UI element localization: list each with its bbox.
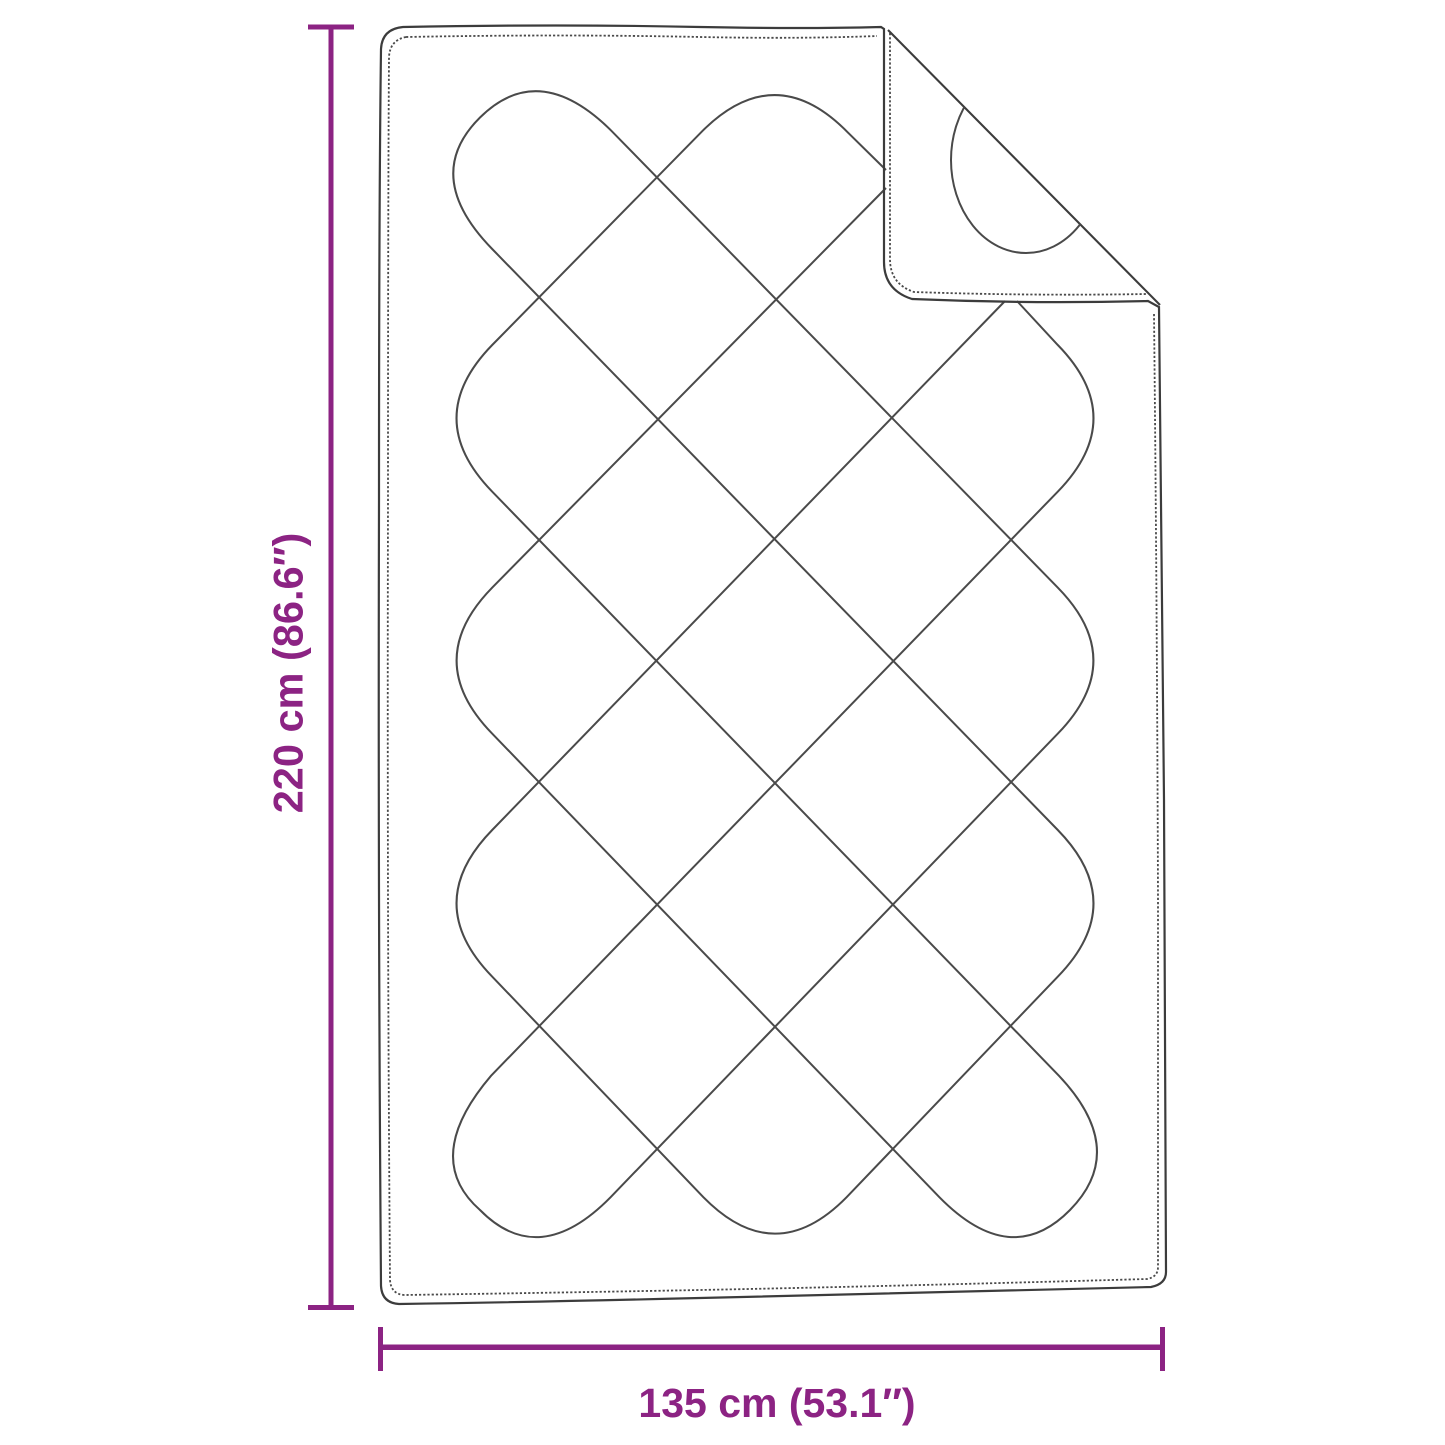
svg-text:135 cm (53.1″): 135 cm (53.1″) xyxy=(638,1380,915,1426)
svg-text:220 cm (86.6″): 220 cm (86.6″) xyxy=(265,533,312,814)
